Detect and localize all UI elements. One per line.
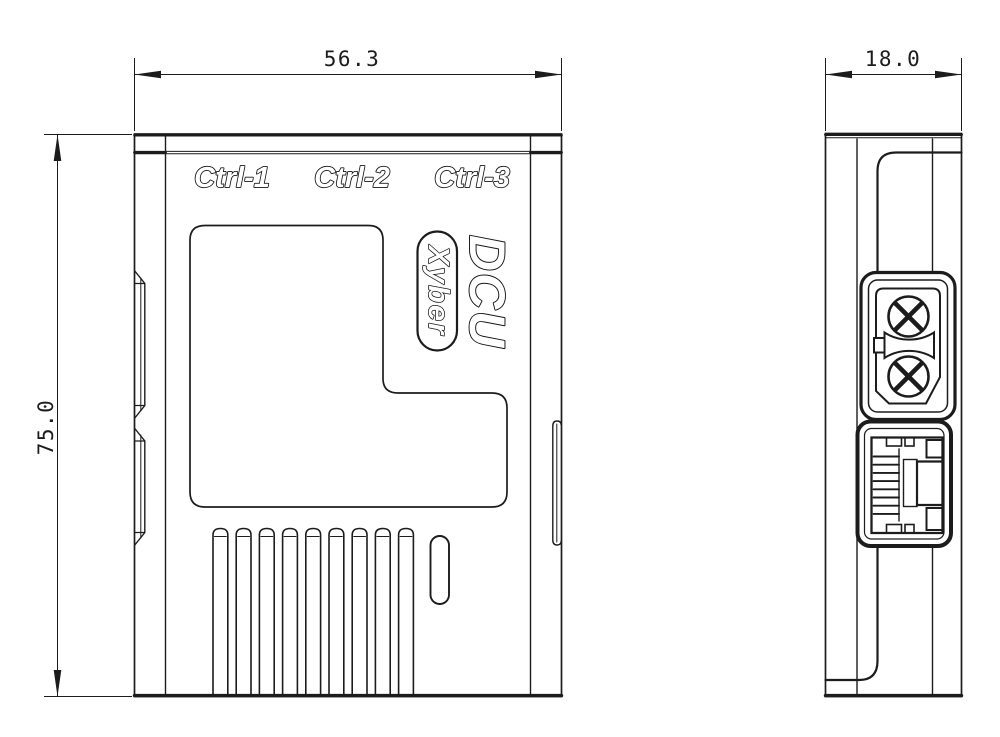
brand-logo: Xyber <box>422 244 454 337</box>
vent-rib <box>306 529 321 696</box>
left-snap-tab-upper <box>135 271 145 418</box>
xt30-power-connector <box>861 273 955 420</box>
vent-rib <box>213 529 228 696</box>
port-label-ctrl-2: Ctrl-2 <box>314 162 390 194</box>
engineering-drawing-canvas: 56.3 18.0 75.0 Ctrl-1 Ctrl-2 Ctrl-3 DCU … <box>0 0 1000 737</box>
right-snap-tab <box>553 421 561 545</box>
technical-drawing: 56.3 18.0 75.0 Ctrl-1 Ctrl-2 Ctrl-3 DCU … <box>0 0 1000 737</box>
left-snap-tab-lower <box>135 429 145 546</box>
port-label-ctrl-1: Ctrl-1 <box>194 162 270 194</box>
rj45-ethernet-port <box>858 422 952 547</box>
vent-rib <box>259 529 274 696</box>
depth-dimension-value: 18.0 <box>865 47 922 71</box>
vent-rib <box>352 529 367 696</box>
product-name-logo: DCU <box>459 235 515 349</box>
arrowhead-left <box>826 71 853 79</box>
width-dimension-value: 56.3 <box>324 47 381 71</box>
arrowhead-left <box>135 71 162 79</box>
vent-rib <box>399 529 414 696</box>
arrowhead-right <box>535 71 562 79</box>
front-view <box>135 134 562 697</box>
arrowhead-down <box>54 670 62 697</box>
reset-slot <box>431 536 450 604</box>
xt30-key-stem <box>874 338 885 353</box>
port-label-ctrl-3: Ctrl-3 <box>434 162 510 194</box>
front-outer-body <box>135 134 562 697</box>
height-dimension-value: 75.0 <box>34 399 58 456</box>
vent-ribs <box>213 529 413 696</box>
side-view <box>826 134 962 697</box>
vent-rib <box>375 529 390 696</box>
vent-rib <box>236 529 251 696</box>
arrowhead-up <box>54 135 62 162</box>
vent-rib <box>283 529 298 696</box>
vent-rib <box>329 529 344 696</box>
arrowhead-right <box>935 71 962 79</box>
